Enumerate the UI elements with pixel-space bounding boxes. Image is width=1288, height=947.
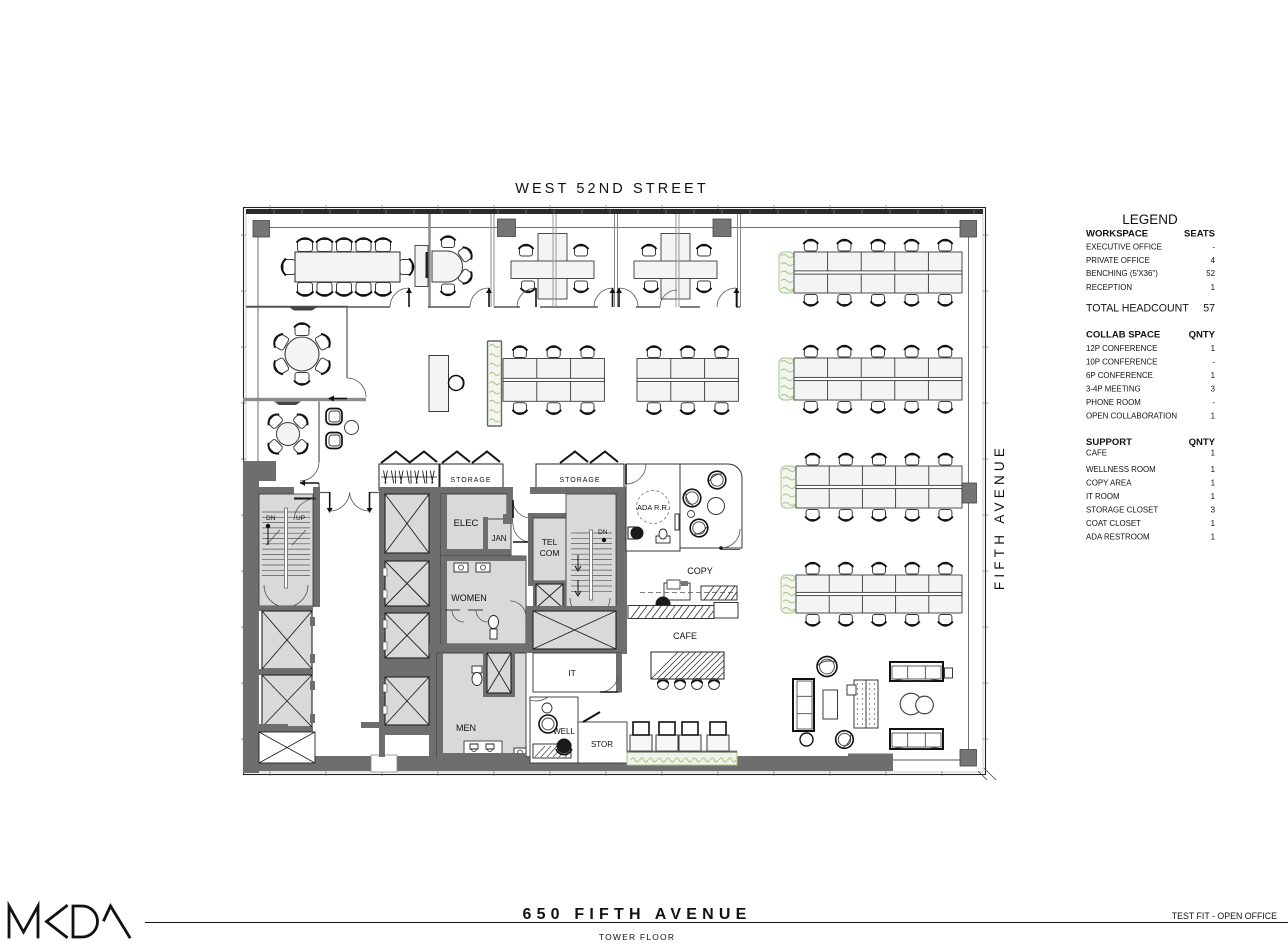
svg-text:IT ROOM: IT ROOM (1086, 492, 1120, 501)
svg-text:WORKSPACE: WORKSPACE (1086, 229, 1148, 240)
svg-text:WELLNESS ROOM: WELLNESS ROOM (1086, 465, 1156, 474)
svg-text:QNTY: QNTY (1189, 330, 1216, 341)
svg-text:1: 1 (1211, 465, 1215, 474)
svg-text:SUPPORT: SUPPORT (1086, 437, 1132, 448)
svg-text:TOTAL HEADCOUNT: TOTAL HEADCOUNT (1086, 303, 1189, 315)
svg-text:QNTY: QNTY (1189, 437, 1216, 448)
svg-text:SEATS: SEATS (1184, 229, 1215, 240)
svg-text:10P CONFERENCE: 10P CONFERENCE (1086, 358, 1157, 367)
svg-text:DN: DN (598, 529, 608, 536)
svg-text:3-4P MEETING: 3-4P MEETING (1086, 385, 1141, 394)
svg-text:-: - (1212, 398, 1215, 407)
svg-text:ELEC: ELEC (454, 518, 479, 529)
svg-text:COPY AREA: COPY AREA (1086, 479, 1132, 488)
svg-text:1: 1 (1211, 344, 1215, 353)
svg-text:WOMEN: WOMEN (451, 593, 487, 603)
svg-text:BENCHING (5'X36"): BENCHING (5'X36") (1086, 269, 1158, 278)
svg-text:EXECUTIVE OFFICE: EXECUTIVE OFFICE (1086, 243, 1162, 252)
svg-text:6P CONFERENCE: 6P CONFERENCE (1086, 371, 1153, 380)
svg-text:COAT CLOSET: COAT CLOSET (1086, 519, 1141, 528)
svg-text:STORAGE: STORAGE (559, 477, 600, 484)
svg-text:12P CONFERENCE: 12P CONFERENCE (1086, 344, 1157, 353)
svg-text:LEGEND: LEGEND (1122, 212, 1178, 227)
svg-text:COM: COM (540, 548, 560, 558)
svg-text:COLLAB SPACE: COLLAB SPACE (1086, 330, 1160, 341)
svg-text:CAFE: CAFE (1086, 449, 1107, 458)
svg-text:1: 1 (1211, 479, 1215, 488)
svg-text:PHONE ROOM: PHONE ROOM (1086, 398, 1141, 407)
svg-text:4: 4 (1211, 256, 1216, 265)
svg-text:TEST FIT - OPEN OFFICE: TEST FIT - OPEN OFFICE (1172, 911, 1277, 921)
svg-text:1: 1 (1211, 533, 1215, 542)
svg-text:STOR: STOR (591, 740, 613, 749)
svg-text:PRIVATE OFFICE: PRIVATE OFFICE (1086, 256, 1150, 265)
svg-text:TOWER FLOOR: TOWER FLOOR (599, 932, 675, 942)
svg-text:1: 1 (1211, 449, 1215, 458)
svg-text:3: 3 (1211, 506, 1216, 515)
svg-text:OPEN COLLABORATION: OPEN COLLABORATION (1086, 412, 1177, 421)
svg-text:DN: DN (266, 515, 276, 522)
svg-text:3: 3 (1211, 385, 1216, 394)
svg-text:FIFTH AVENUE: FIFTH AVENUE (992, 444, 1007, 590)
svg-text:STORAGE CLOSET: STORAGE CLOSET (1086, 506, 1158, 515)
svg-text:UP: UP (296, 515, 305, 522)
svg-text:1: 1 (1211, 283, 1215, 292)
svg-text:COPY: COPY (687, 566, 713, 576)
svg-text:ADA R.R.: ADA R.R. (637, 503, 669, 512)
svg-text:RECEPTION: RECEPTION (1086, 283, 1132, 292)
svg-text:-: - (1212, 358, 1215, 367)
svg-text:ADA RESTROOM: ADA RESTROOM (1086, 533, 1150, 542)
svg-text:52: 52 (1206, 269, 1215, 278)
svg-text:1: 1 (1211, 412, 1215, 421)
svg-text:JAN: JAN (491, 534, 506, 543)
svg-text:CAFE: CAFE (673, 631, 697, 641)
svg-text:650 FIFTH AVENUE: 650 FIFTH AVENUE (522, 906, 751, 923)
svg-text:WEST 52ND STREET: WEST 52ND STREET (515, 181, 709, 197)
svg-text:1: 1 (1211, 519, 1215, 528)
svg-text:-: - (1212, 243, 1215, 252)
svg-text:MEN: MEN (456, 723, 476, 733)
svg-text:1: 1 (1211, 371, 1215, 380)
svg-text:STORAGE: STORAGE (450, 477, 491, 484)
svg-text:IT: IT (568, 668, 576, 678)
svg-text:1: 1 (1211, 492, 1215, 501)
svg-text:57: 57 (1203, 303, 1215, 315)
svg-text:TEL: TEL (542, 537, 558, 547)
